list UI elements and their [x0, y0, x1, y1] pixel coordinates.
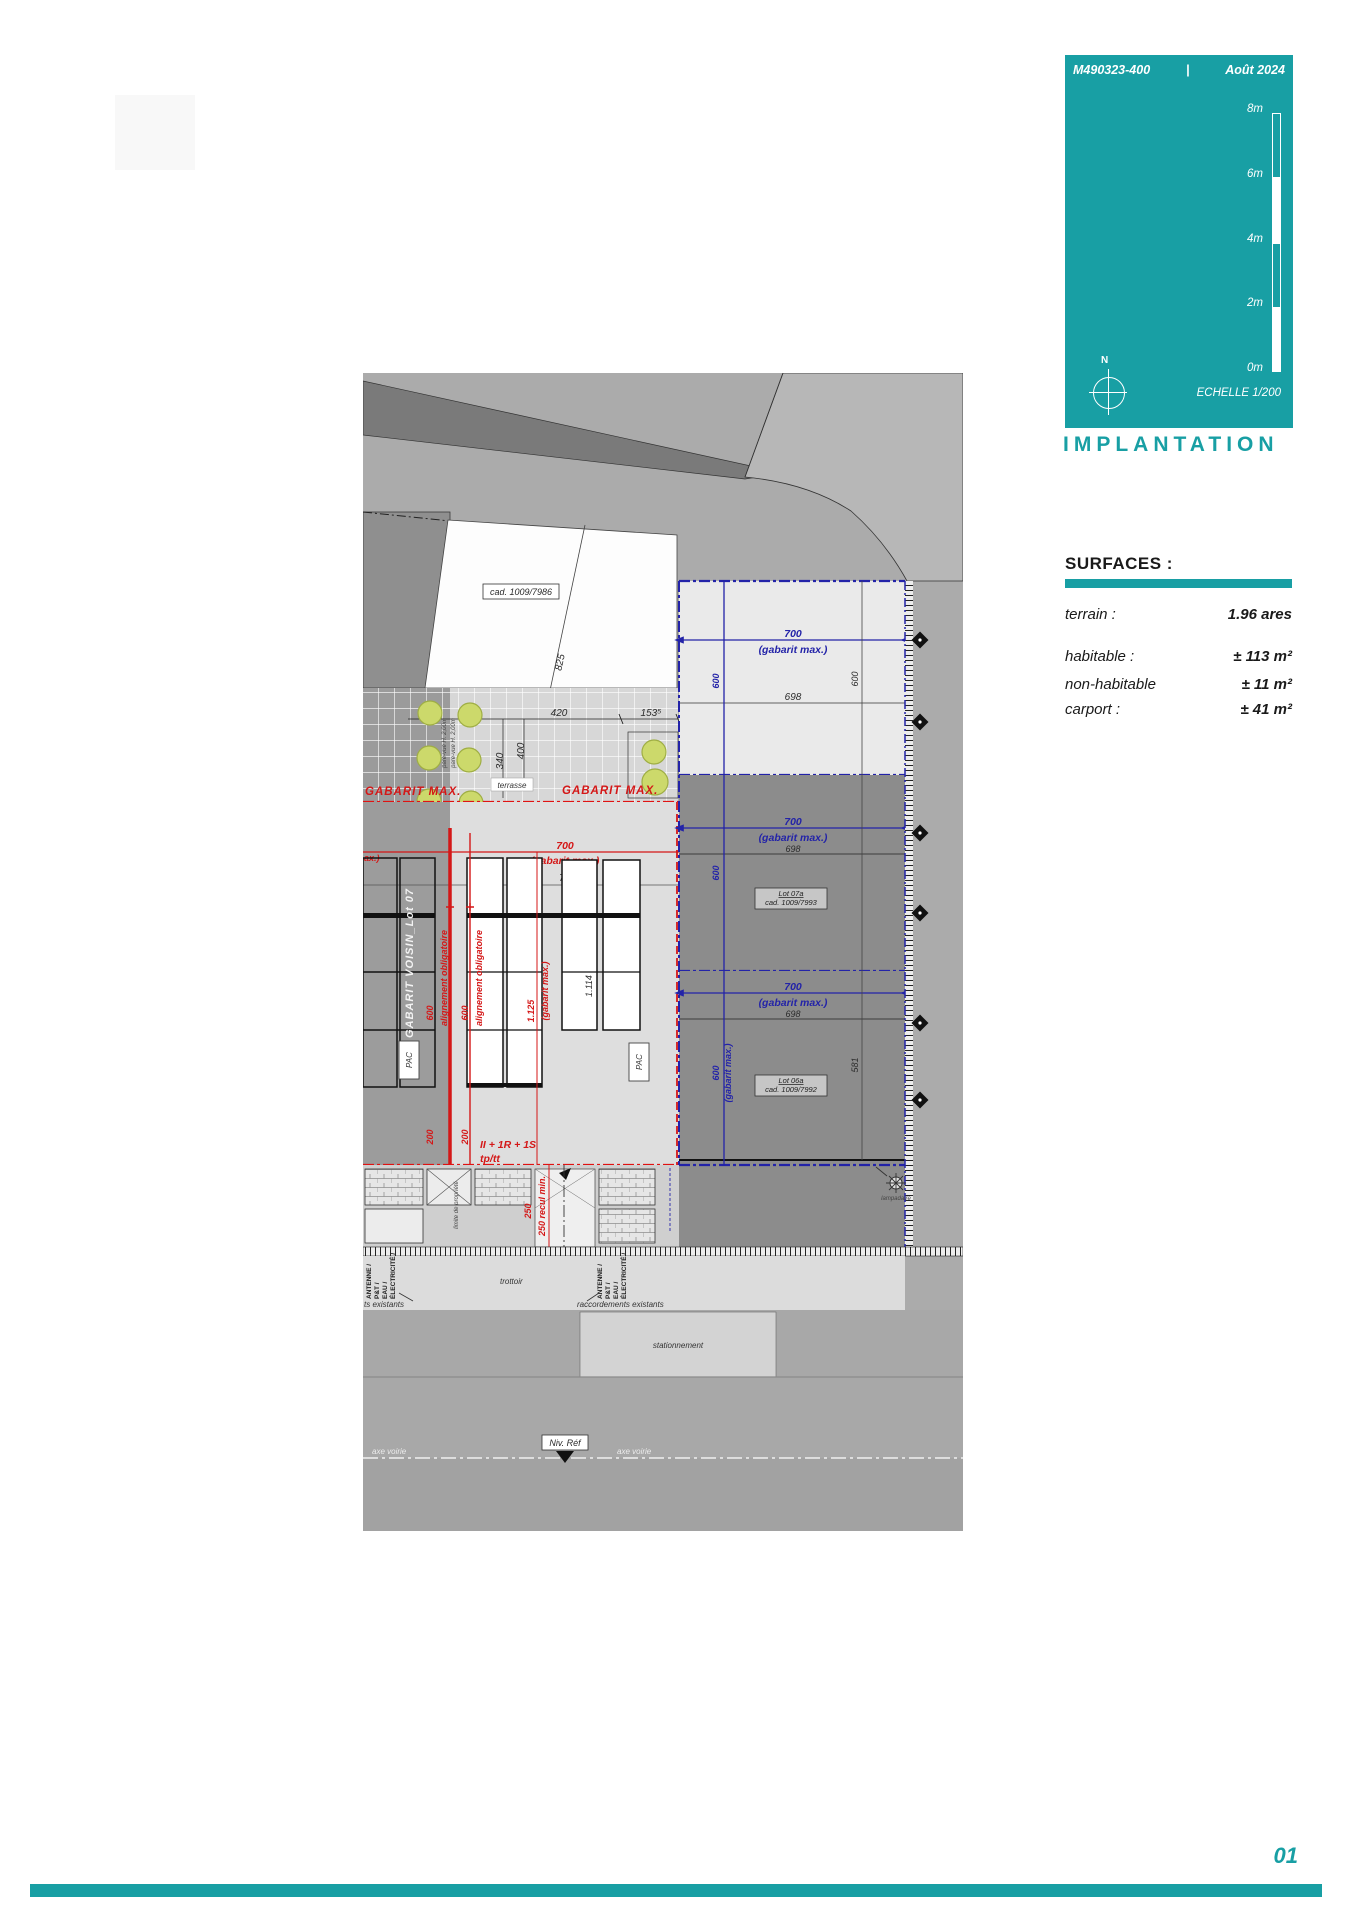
lot-06a: 700 (gabarit max.) 698 600 (gabarit max.… [679, 971, 905, 1247]
north-label: N [1101, 355, 1108, 366]
pac-label-right: PAC [635, 1054, 644, 1070]
habitable-value: ± 113 m² [1233, 648, 1292, 665]
racc-left-label: ts existants [364, 1300, 404, 1309]
scale-0m: 0m [1223, 362, 1263, 374]
lot07a-700: 700 [784, 816, 802, 828]
gabarit-max-left: GABARIT MAX. [365, 786, 461, 798]
dim-153: 153⁵ [641, 708, 662, 719]
lot-top-698: 698 [785, 692, 802, 703]
lot-top-700: 700 [784, 628, 802, 640]
dim-250: 250 [523, 1203, 533, 1219]
terrain-label: terrain : [1065, 606, 1116, 623]
trottoir-label: trottoir [500, 1277, 523, 1286]
surfaces-row-carport: carport : ± 41 m² [1065, 701, 1292, 721]
gabarit-voisin-label: GABARIT VOISIN_Lot 07 [404, 888, 416, 1038]
scale-4m: 4m [1223, 233, 1263, 245]
non-habitable-value: ± 11 m² [1242, 676, 1292, 693]
lot06a-700: 700 [784, 981, 802, 993]
scale-6m: 6m [1223, 168, 1263, 180]
lot06a-cad: cad. 1009/7992 [765, 1085, 818, 1094]
scale-segment-2 [1272, 178, 1281, 243]
parcel-cad-1009-7986: cad. 1009/7986 825 [425, 520, 677, 700]
dim-1125: 1.125 [526, 999, 536, 1023]
gabarit-paren-vert: (gabarit max.) [540, 961, 550, 1020]
lot07a-name: Lot 07a [778, 889, 803, 898]
pare-vue-label-2: pare-vue H. 2,00m [451, 718, 457, 769]
page-number: 01 [1238, 1843, 1298, 1869]
dim-600-red-1: 600 [425, 1005, 435, 1020]
scale-8m: 8m [1223, 103, 1263, 115]
cad-main-label: cad. 1009/7986 [490, 587, 552, 597]
utility-pt-1: P&T / [374, 1282, 381, 1299]
fptt-label: tp/tt [480, 1153, 500, 1165]
lot-top-600-left: 600 [711, 673, 721, 688]
lot06a-600: 600 [711, 1065, 721, 1080]
lot06a-698: 698 [785, 1009, 800, 1019]
stationnement-label: stationnement [653, 1341, 704, 1350]
info-box: M490323-400 | Août 2024 8m 6m 4m 2m 0m N… [1065, 55, 1293, 428]
lot07a-600: 600 [711, 865, 721, 880]
lot06a-gabarit: (gabarit max.) [759, 997, 828, 1009]
faint-square [115, 95, 195, 170]
project-date: Août 2024 [1225, 63, 1285, 77]
recul-min-label: 250 recul min. [537, 1176, 547, 1237]
dim-420: 420 [551, 708, 568, 719]
pare-vue-label-1: pare-vue H. 2,00m [442, 718, 448, 769]
lot-top-gabarit: (gabarit max.) [759, 644, 828, 656]
floors-label: II + 1R + 1S [480, 1139, 536, 1151]
lot07a-cad: cad. 1009/7993 [765, 898, 818, 907]
utility-eau-2: EAU / [613, 1281, 620, 1299]
surfaces-row-non-habitable: non-habitable ± 11 m² [1065, 676, 1292, 696]
carport-label: carport : [1065, 701, 1120, 718]
carport-value: ± 41 m² [1240, 701, 1292, 718]
utility-pt-2: P&T / [605, 1282, 612, 1299]
lot07a-698: 698 [785, 844, 800, 854]
terrain-value: 1.96 ares [1228, 606, 1292, 623]
scale-text: ECHELLE 1/200 [1197, 387, 1281, 399]
pac-label-left: PAC [405, 1052, 414, 1068]
utility-elec-1: ÉLECTRICITÉ / [388, 1253, 397, 1299]
limite-propriete-1: limite de propriété [454, 1180, 460, 1228]
racc-right-label: raccordements existants [577, 1300, 664, 1309]
utility-antenne-1: ANTENNE / [366, 1264, 373, 1299]
habitable-label: habitable : [1065, 648, 1134, 665]
red-700: 700 [556, 840, 574, 852]
lot-07a: 700 (gabarit max.) 698 600 Lot 07a cad. … [679, 775, 905, 971]
surfaces-row-terrain: terrain : 1.96 ares [1065, 606, 1292, 626]
alignement-label-2: alignement obligatoire [474, 930, 484, 1026]
project-ref: M490323-400 [1073, 63, 1150, 77]
lot06a-581: 581 [850, 1057, 860, 1072]
dim-1114: 1.114 [584, 975, 594, 997]
dim-400: 400 [516, 742, 527, 759]
sidewalk: ANTENNE / P&T / EAU / ÉLECTRICITÉ / ts e… [363, 1247, 963, 1310]
scale-segment-4 [1272, 308, 1281, 372]
scale-segment-3 [1272, 243, 1281, 308]
utility-eau-1: EAU / [382, 1281, 389, 1299]
terrasse-label: terrasse [498, 781, 527, 790]
scale-segment-1 [1272, 113, 1281, 178]
compass-crossbar [1089, 392, 1127, 394]
axe-voirie-right: axe voirie [617, 1447, 652, 1456]
building-zone: 700 (gabarit max.) ax.) 700 [363, 802, 690, 1165]
scale-2m: 2m [1223, 297, 1263, 309]
lot-top-600-right: 600 [850, 671, 860, 686]
surfaces-heading: SURFACES : [1065, 554, 1173, 574]
lampadaire-label: lampadaire [881, 1196, 911, 1202]
header-divider: | [1186, 63, 1190, 77]
dim-340: 340 [495, 752, 506, 769]
dim-200-1: 200 [425, 1129, 435, 1145]
page-title: IMPLANTATION [1063, 433, 1295, 457]
non-habitable-label: non-habitable [1065, 676, 1156, 693]
gabarit-max-right: GABARIT MAX. [562, 785, 658, 797]
utility-elec-2: ÉLECTRICITÉ / [619, 1253, 628, 1299]
road: stationnement axe voirie axe voirie Niv.… [363, 1310, 963, 1531]
axe-voirie-left: axe voirie [372, 1447, 407, 1456]
dim-600-red-2: 600 [460, 1005, 470, 1020]
document-page: cad. 1009/7986 825 420 153⁵ 340 400 pare… [0, 0, 1353, 1920]
lot06a-name: Lot 06a [778, 1076, 803, 1085]
lot07a-gabarit: (gabarit max.) [759, 832, 828, 844]
surfaces-underline [1065, 579, 1292, 588]
alignement-label-1: alignement obligatoire [439, 930, 449, 1026]
niv-ref-label: Niv. Réf [549, 1438, 582, 1448]
lot-top: 700 (gabarit max.) 698 600 600 [679, 581, 905, 775]
dim-200-2: 200 [460, 1129, 470, 1145]
front-yard: limite de propriété limite de propriété … [363, 1165, 687, 1248]
site-plan: cad. 1009/7986 825 420 153⁵ 340 400 pare… [363, 373, 963, 1531]
surfaces-row-habitable: habitable : ± 113 m² [1065, 648, 1292, 668]
footer-bar [30, 1884, 1322, 1897]
